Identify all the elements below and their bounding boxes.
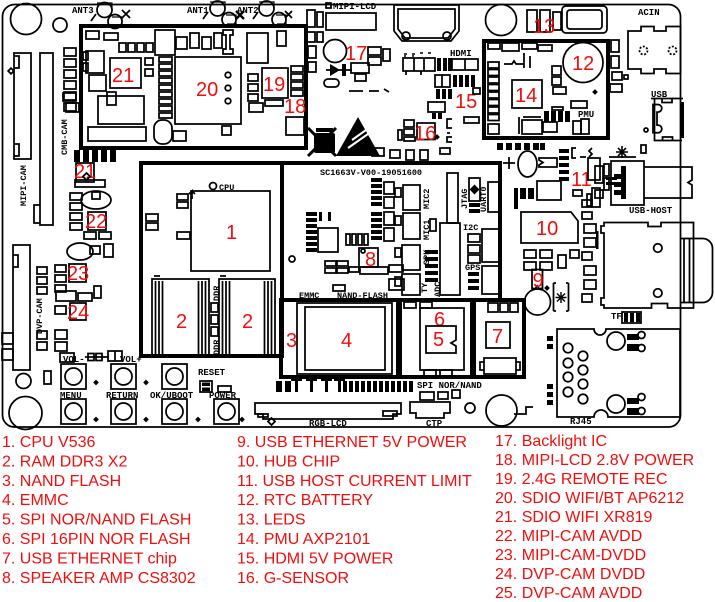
svg-text:18: 18	[284, 96, 306, 118]
svg-text:DDR: DDR	[212, 285, 222, 301]
svg-text:RJ45: RJ45	[570, 417, 592, 427]
svg-text:12. RTC BATTERY: 12. RTC BATTERY	[237, 492, 373, 509]
svg-text:ANT3: ANT3	[72, 6, 94, 16]
svg-text:5: 5	[433, 329, 444, 351]
svg-text:HDMI: HDMI	[450, 49, 472, 59]
svg-text:MIPI-CAM: MIPI-CAM	[19, 165, 29, 206]
svg-text:25. DVP-CAM AVDD: 25. DVP-CAM AVDD	[495, 585, 642, 602]
svg-text:23: 23	[67, 263, 89, 285]
svg-text:2: 2	[242, 311, 253, 333]
svg-text:21: 21	[112, 65, 134, 87]
svg-text:14: 14	[515, 85, 537, 107]
svg-text:10: 10	[536, 218, 558, 240]
svg-text:SPI NOR/NAND: SPI NOR/NAND	[417, 381, 482, 391]
svg-text:3. NAND FLASH: 3. NAND FLASH	[2, 473, 121, 490]
svg-text:SC1663V-V00-19051600: SC1663V-V00-19051600	[320, 168, 422, 178]
svg-text:19. 2.4G REMOTE REC: 19. 2.4G REMOTE REC	[495, 471, 668, 488]
svg-text:14. PMU AXP2101: 14. PMU AXP2101	[237, 531, 371, 548]
svg-text:8: 8	[365, 249, 376, 271]
svg-text:17: 17	[345, 43, 367, 65]
svg-text:MIC2: MIC2	[422, 189, 432, 209]
svg-text:11. USB HOST CURRENT LIMIT: 11. USB HOST CURRENT LIMIT	[237, 473, 472, 490]
svg-text:19: 19	[263, 74, 285, 96]
svg-text:MIPI-LCD: MIPI-LCD	[333, 2, 377, 12]
svg-text:24. DVP-CAM DVDD: 24. DVP-CAM DVDD	[495, 566, 645, 583]
svg-text:4: 4	[341, 330, 352, 352]
svg-text:9. USB ETHERNET 5V POWER: 9. USB ETHERNET 5V POWER	[237, 434, 467, 451]
svg-text:DDR: DDR	[212, 339, 222, 355]
svg-text:8. SPEAKER AMP CS8302: 8. SPEAKER AMP CS8302	[2, 570, 196, 587]
svg-text:ACIN: ACIN	[638, 8, 660, 18]
svg-text:17. Backlight IC: 17. Backlight IC	[495, 433, 607, 450]
svg-text:6. SPI 16PIN NOR FLASH: 6. SPI 16PIN NOR FLASH	[2, 531, 191, 548]
svg-text:CTP: CTP	[426, 419, 443, 429]
svg-text:7: 7	[492, 326, 503, 348]
svg-text:16: 16	[414, 123, 436, 145]
svg-text:CMB-CAM: CMB-CAM	[60, 119, 70, 155]
svg-text:22: 22	[85, 211, 107, 233]
svg-text:12: 12	[572, 53, 594, 75]
svg-text:18. MIPI-LCD 2.8V POWER: 18. MIPI-LCD 2.8V POWER	[495, 452, 694, 469]
svg-text:RESET: RESET	[198, 368, 226, 378]
svg-text:10. HUB CHIP: 10. HUB CHIP	[237, 453, 340, 470]
svg-text:23. MIPI-CAM-DVDD: 23. MIPI-CAM-DVDD	[495, 547, 646, 564]
svg-text:I2C: I2C	[463, 223, 478, 233]
svg-text:2: 2	[176, 311, 187, 333]
svg-text:4. EMMC: 4. EMMC	[2, 492, 69, 509]
svg-text:16. G-SENSOR: 16. G-SENSOR	[237, 570, 349, 587]
svg-text:TF: TF	[611, 312, 622, 322]
svg-text:3: 3	[286, 330, 297, 352]
svg-text:1. CPU V536: 1. CPU V536	[2, 434, 95, 451]
svg-text:GPS: GPS	[465, 263, 480, 273]
svg-text:USB-HOST: USB-HOST	[629, 206, 673, 216]
svg-text:15. HDMI 5V POWER: 15. HDMI 5V POWER	[237, 550, 393, 567]
svg-text:2. RAM DDR3 X2: 2. RAM DDR3 X2	[2, 453, 127, 470]
svg-text:22. MIPI-CAM AVDD: 22. MIPI-CAM AVDD	[495, 528, 642, 545]
svg-text:13: 13	[533, 16, 555, 38]
svg-text:1: 1	[226, 222, 237, 244]
svg-text:DVP-CAM: DVP-CAM	[35, 298, 45, 334]
svg-text:RGB-LCD: RGB-LCD	[309, 419, 347, 429]
svg-text:5. SPI NOR/NAND FLASH: 5. SPI NOR/NAND FLASH	[2, 512, 191, 529]
svg-text:13. LEDS: 13. LEDS	[237, 512, 305, 529]
svg-text:7. USB ETHERNET chip: 7. USB ETHERNET chip	[2, 550, 177, 567]
svg-text:20: 20	[196, 79, 218, 101]
svg-text:24: 24	[67, 302, 89, 324]
svg-text:6: 6	[434, 309, 445, 331]
svg-text:TY: TY	[420, 282, 430, 293]
svg-text:UART0: UART0	[479, 186, 489, 212]
svg-text:21. SDIO WIFI XR819: 21. SDIO WIFI XR819	[495, 509, 652, 526]
svg-text:20. SDIO WIFI/BT AP6212: 20. SDIO WIFI/BT AP6212	[495, 490, 684, 507]
